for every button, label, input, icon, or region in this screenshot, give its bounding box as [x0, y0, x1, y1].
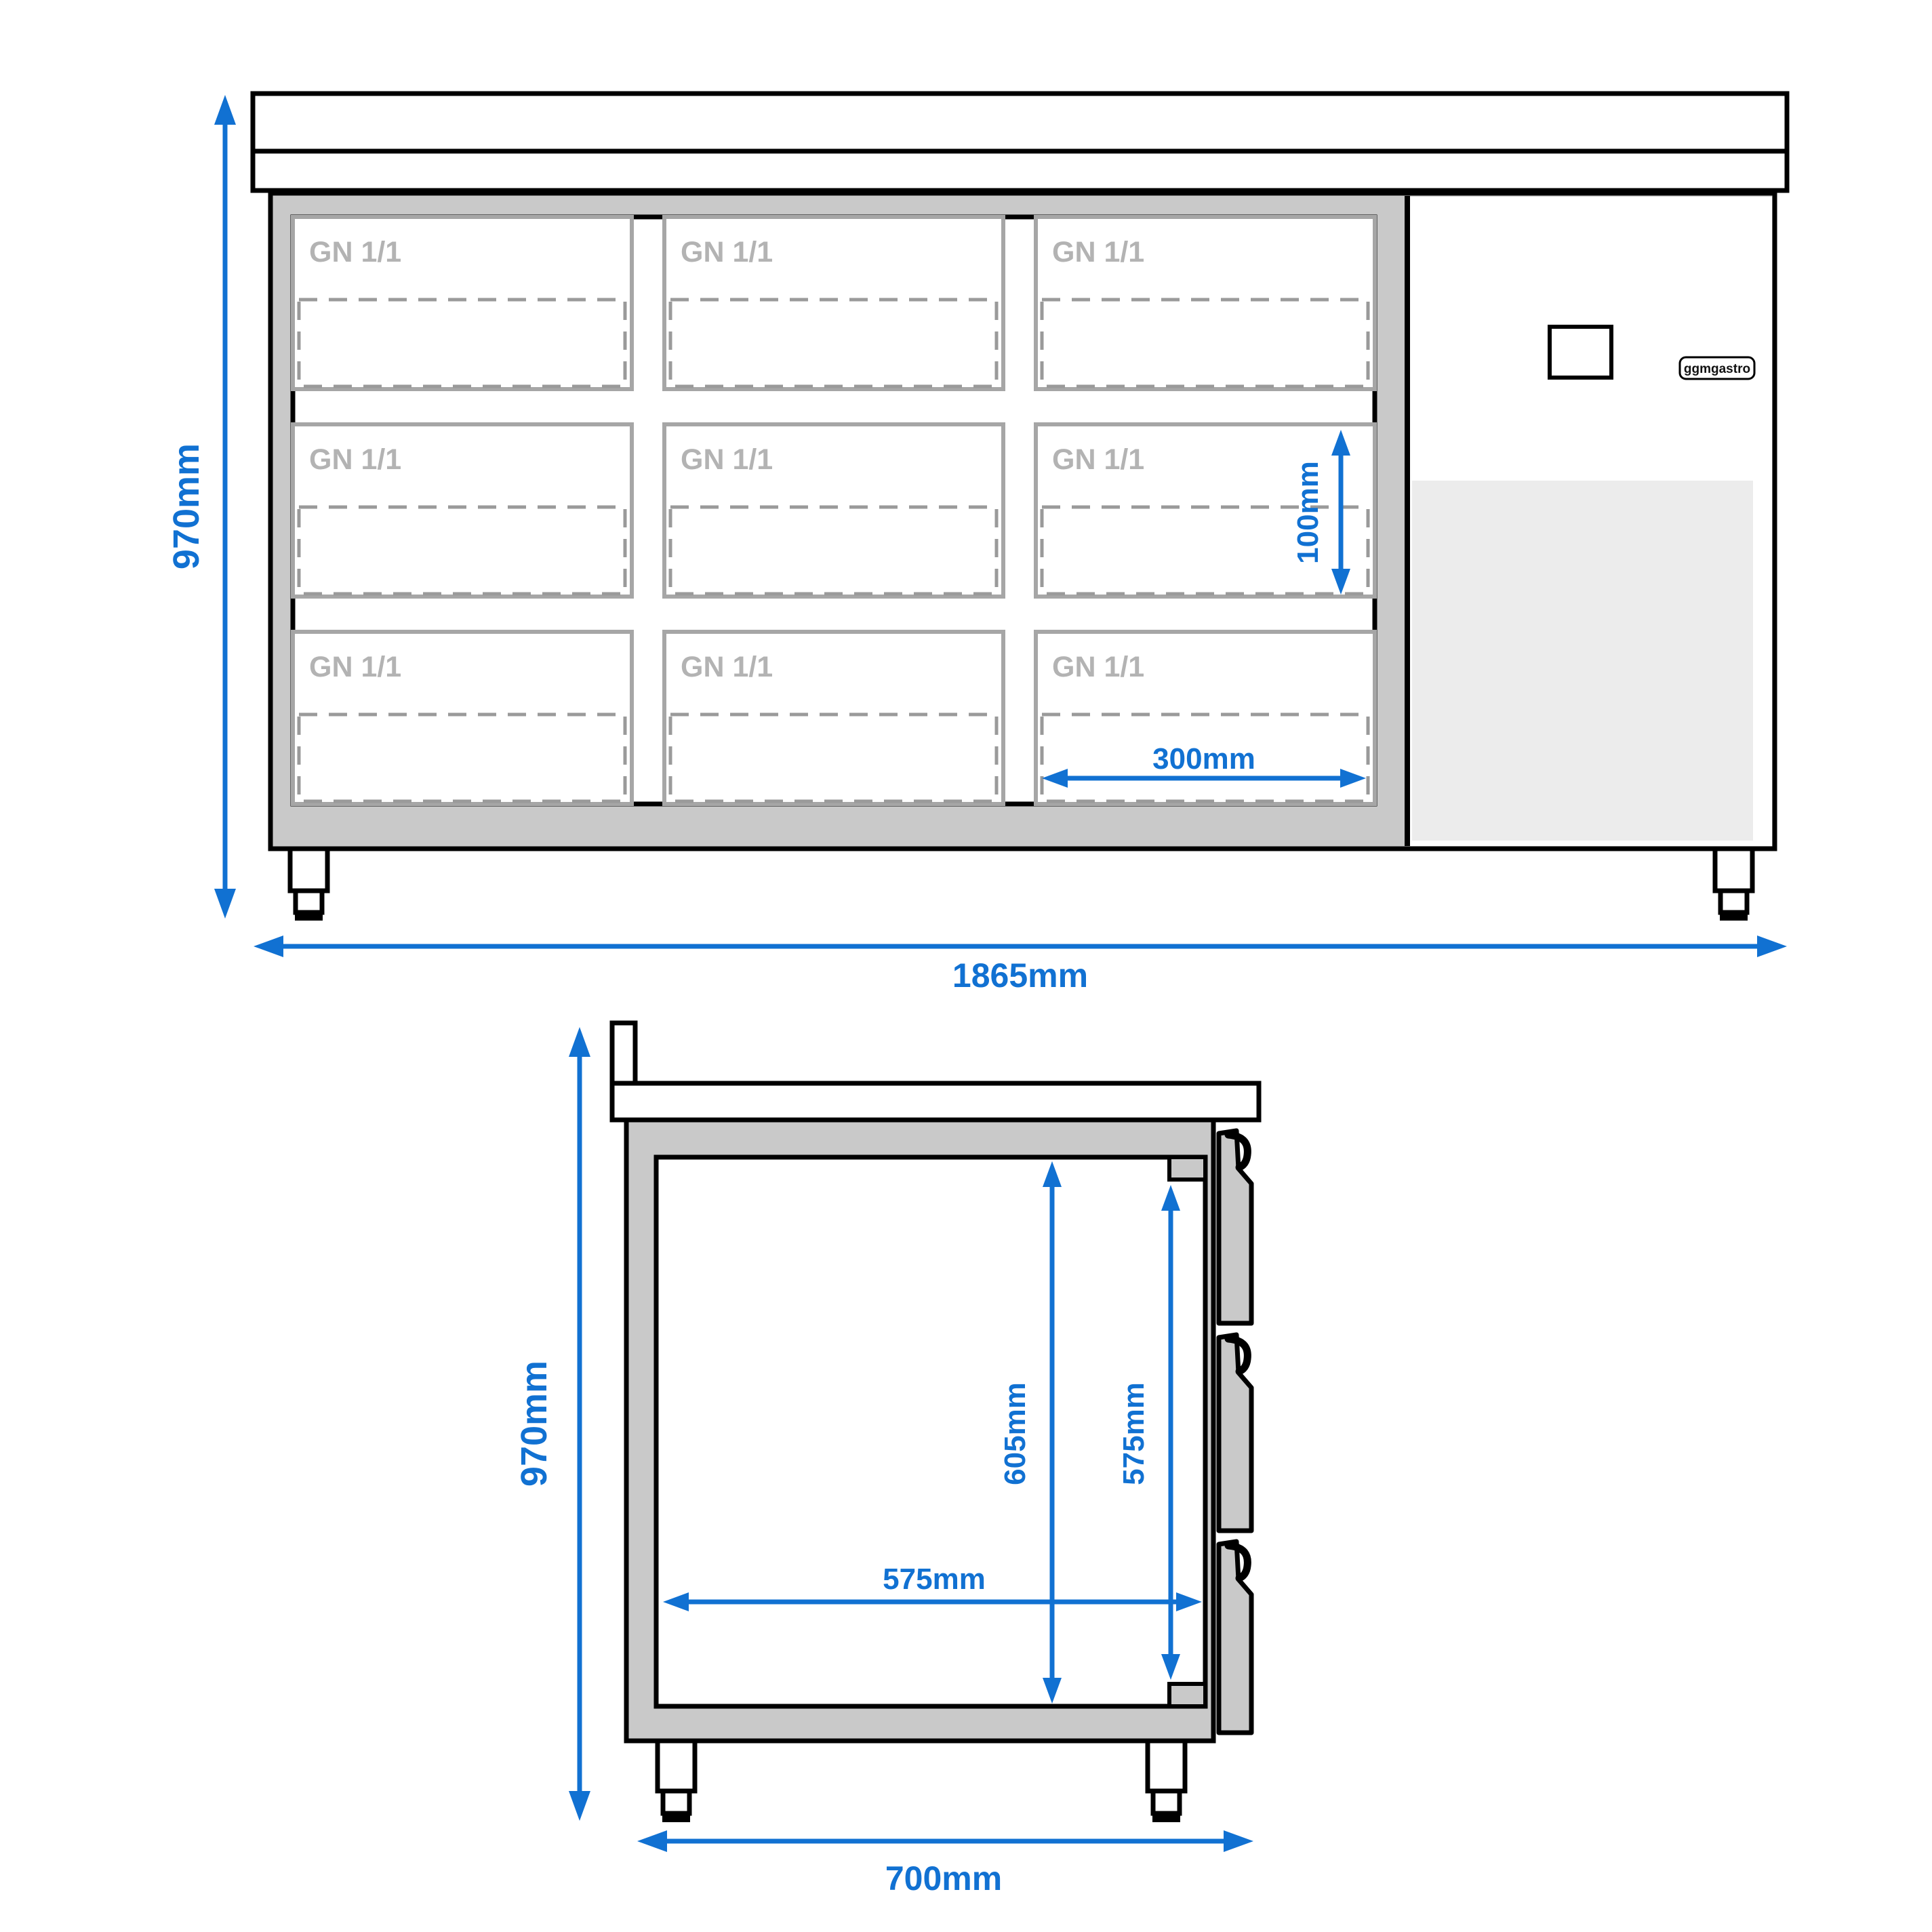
front-left-leg — [290, 849, 327, 920]
gn-cell: GN 1/1 — [293, 632, 632, 804]
leg-foot — [1153, 1791, 1180, 1813]
gn-cell-label: GN 1/1 — [309, 236, 401, 268]
gn-cell: GN 1/1 — [293, 424, 632, 597]
leg-shaft — [1715, 849, 1752, 891]
leg-shaft — [1148, 1741, 1185, 1791]
side-right-leg — [1148, 1741, 1185, 1822]
gn-cell-label: GN 1/1 — [309, 651, 401, 683]
gn-cell-label: GN 1/1 — [309, 443, 401, 476]
front-worktop-top-band — [253, 94, 1787, 151]
side-bottom-rail-step — [1169, 1684, 1205, 1706]
dimension-label: 300mm — [1152, 742, 1255, 776]
leg-cap — [1720, 912, 1747, 920]
side-left-leg — [658, 1741, 695, 1822]
leg-foot — [296, 891, 322, 912]
leg-foot — [1720, 891, 1747, 912]
leg-shaft — [290, 849, 327, 891]
front-right-leg — [1715, 849, 1752, 920]
brand-logo: ggmgastro — [1680, 357, 1754, 379]
dimension-label: 1865mm — [952, 957, 1088, 994]
gn-cell-label: GN 1/1 — [681, 443, 773, 476]
drawer-profile-middle — [1219, 1335, 1251, 1531]
leg-shaft — [658, 1741, 695, 1791]
gn-cell: GN 1/1 — [664, 217, 1003, 389]
drawer-profile-bottom — [1219, 1542, 1251, 1733]
gn-cell: GN 1/1 — [664, 424, 1003, 597]
leg-cap — [1153, 1813, 1180, 1822]
control-panel-display — [1550, 327, 1611, 378]
gn-cell-label: GN 1/1 — [1052, 651, 1144, 683]
gn-cell: GN 1/1 — [1036, 217, 1375, 389]
gn-cell: GN 1/1 — [293, 217, 632, 389]
dimension-label: 970mm — [514, 1361, 555, 1487]
gn-cell-label: GN 1/1 — [681, 236, 773, 268]
gn-cell-label: GN 1/1 — [1052, 443, 1144, 476]
front-worktop-lower-band — [253, 151, 1787, 190]
dimension-label: 970mm — [166, 443, 207, 569]
technical-drawing: GN 1/1 GN 1/1 GN 1/1 GN 1/1 GN 1/1 GN 1/… — [0, 0, 1932, 1932]
dimension-label: 575mm — [883, 1563, 986, 1596]
leg-cap — [296, 912, 322, 920]
dimension-label: 700mm — [885, 1859, 1002, 1897]
gn-cell-label: GN 1/1 — [1052, 236, 1144, 268]
gn-cell: GN 1/1 — [664, 632, 1003, 804]
leg-foot — [663, 1791, 689, 1813]
drawer-profile-top — [1219, 1131, 1251, 1323]
dimension-label: 605mm — [999, 1382, 1032, 1485]
dimension-label: 100mm — [1291, 461, 1325, 564]
dimension-label: 575mm — [1117, 1382, 1150, 1485]
leg-cap — [663, 1813, 689, 1822]
ventilation-grille — [1412, 481, 1753, 841]
brand-logo-text: ggmgastro — [1684, 362, 1750, 376]
side-worktop — [612, 1083, 1259, 1120]
side-top-rail-notch — [1169, 1157, 1205, 1180]
gn-cell-label: GN 1/1 — [681, 651, 773, 683]
side-backsplash — [612, 1023, 635, 1085]
